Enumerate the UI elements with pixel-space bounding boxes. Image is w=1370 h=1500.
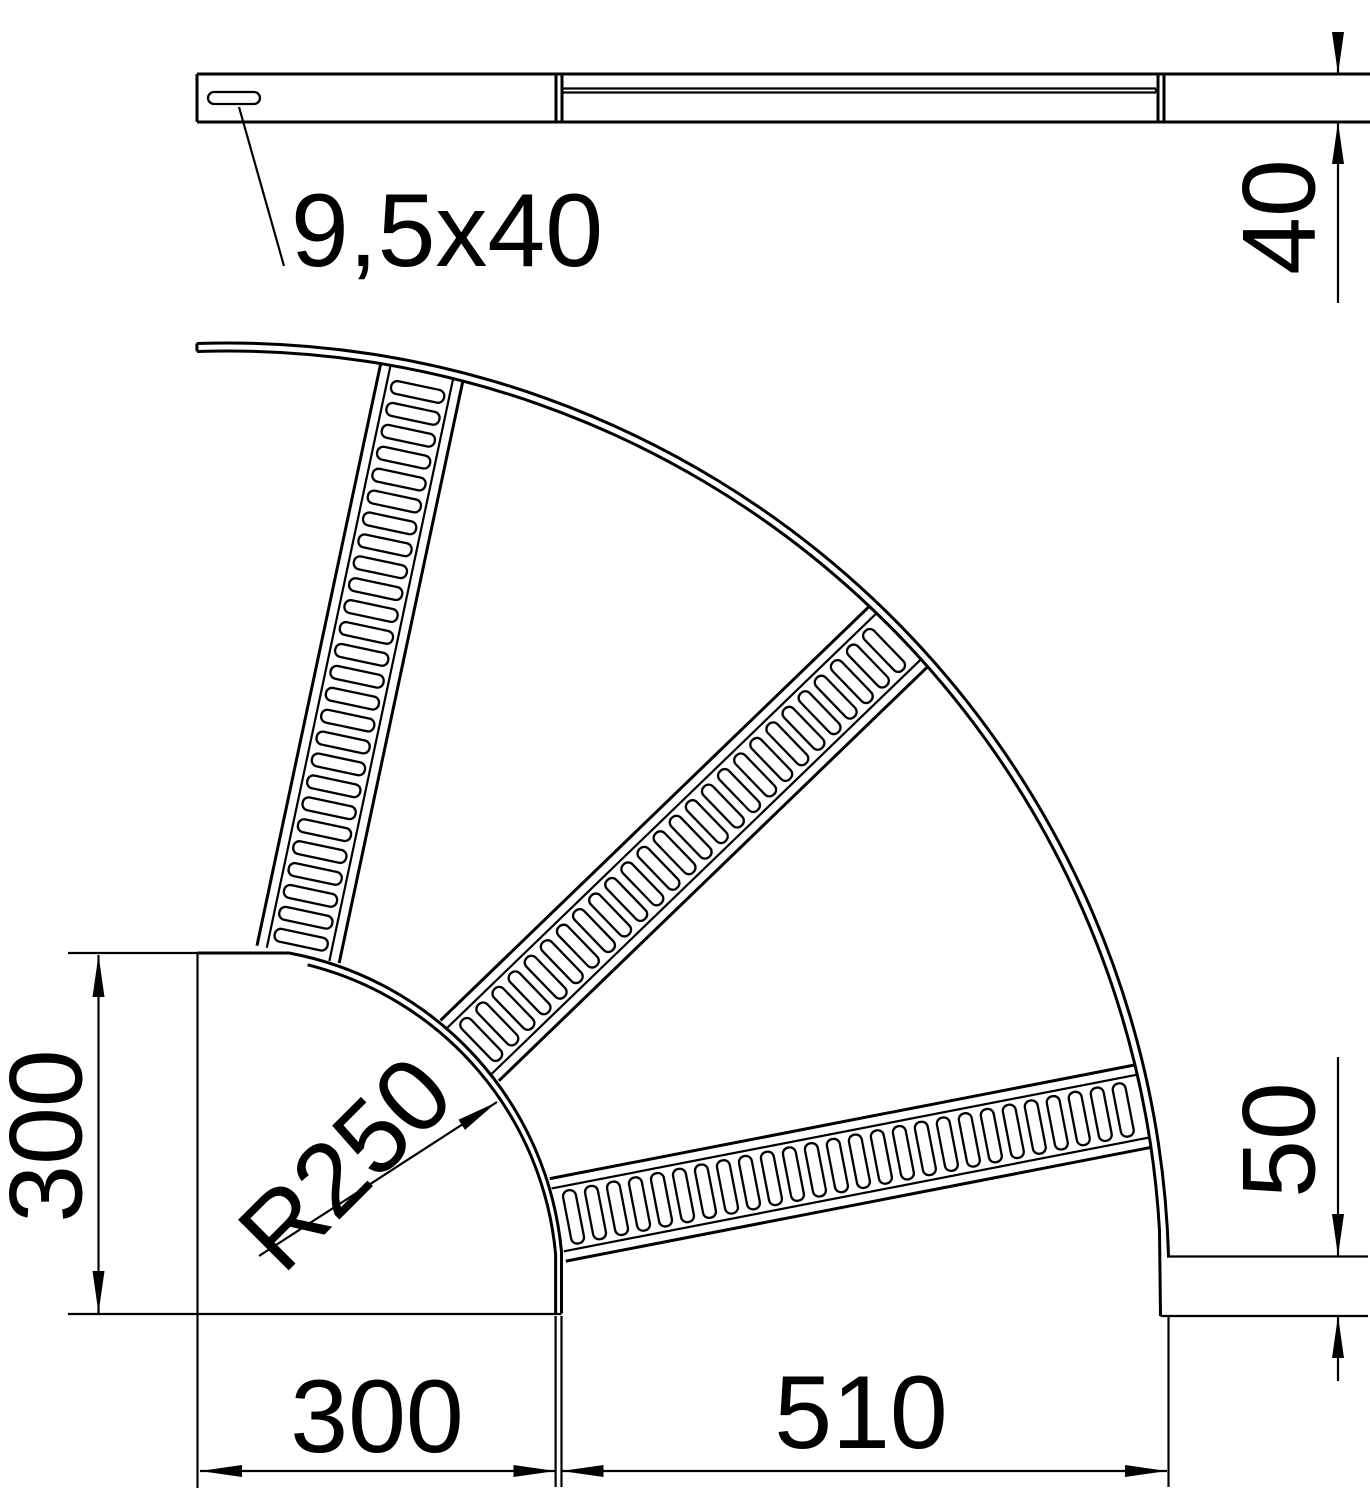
label-bottom-outer: 510 (774, 1355, 948, 1471)
slot-leader-line (239, 107, 284, 266)
label-bottom-width: 300 (290, 1359, 464, 1475)
drawing-page: 9,5x40 40 300 R250 50 300 510 (0, 0, 1370, 1500)
rung-top (257, 363, 463, 963)
technical-drawing: 9,5x40 40 300 R250 50 300 510 (0, 0, 1370, 1500)
slot-hole (208, 92, 260, 104)
label-rail-depth: 50 (1221, 1082, 1337, 1198)
label-radius: R250 (217, 1035, 475, 1293)
label-rail-height: 40 (1221, 159, 1337, 275)
rung-bottom (550, 1065, 1152, 1261)
rung-middle (441, 606, 929, 1081)
label-slot-size: 9,5x40 (291, 173, 603, 289)
label-left-width: 300 (0, 1049, 104, 1223)
